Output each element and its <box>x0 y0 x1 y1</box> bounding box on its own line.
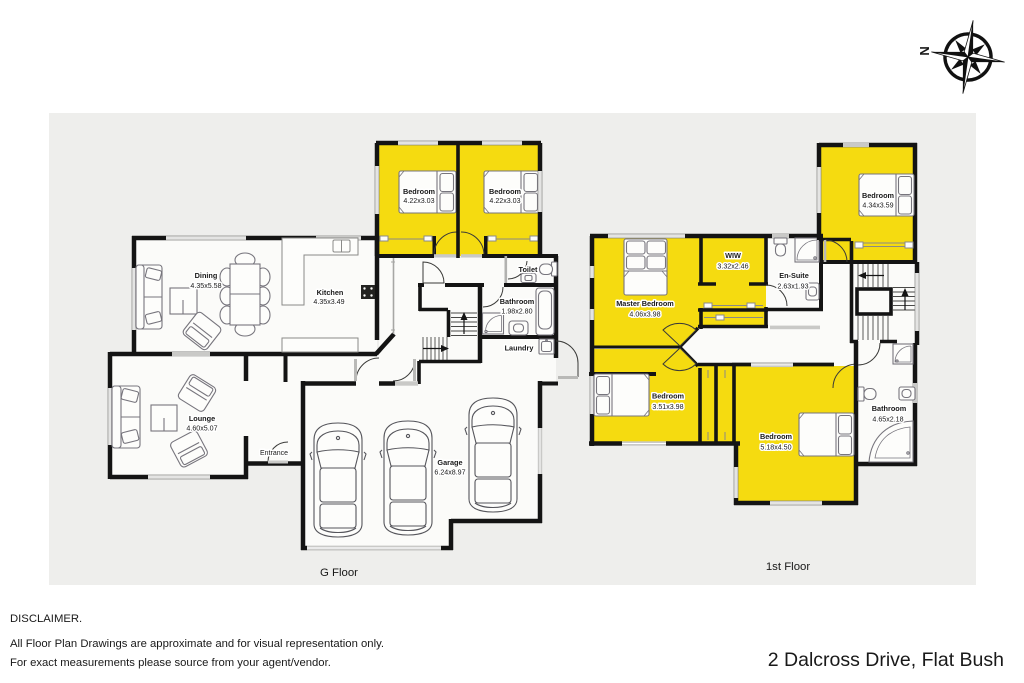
svg-text:Garage: Garage <box>437 458 462 467</box>
svg-text:Bathroom: Bathroom <box>872 404 907 413</box>
svg-text:Lounge: Lounge <box>189 414 215 423</box>
svg-text:Master Bedroom: Master Bedroom <box>616 299 674 308</box>
svg-text:4.60x5.07: 4.60x5.07 <box>186 425 217 433</box>
svg-text:4.35x3.49: 4.35x3.49 <box>313 298 344 306</box>
svg-text:Bedroom: Bedroom <box>403 187 436 196</box>
svg-text:1.98x2.80: 1.98x2.80 <box>501 308 532 316</box>
svg-text:4.22x3.03: 4.22x3.03 <box>403 197 434 205</box>
svg-text:Bedroom: Bedroom <box>862 191 895 200</box>
svg-text:Bedroom: Bedroom <box>760 432 793 441</box>
svg-text:Bedroom: Bedroom <box>489 187 522 196</box>
svg-text:Laundry: Laundry <box>505 344 535 353</box>
svg-text:1st Floor: 1st Floor <box>766 561 811 573</box>
svg-text:4.34x3.59: 4.34x3.59 <box>862 202 893 210</box>
svg-text:3.32x2.46: 3.32x2.46 <box>717 263 748 271</box>
svg-text:DISCLAIMER.: DISCLAIMER. <box>10 613 82 625</box>
svg-text:Toilet: Toilet <box>519 265 538 274</box>
svg-text:Dining: Dining <box>195 271 218 280</box>
svg-text:5.18x4.50: 5.18x4.50 <box>760 444 791 452</box>
svg-text:G Floor: G Floor <box>320 567 358 579</box>
svg-text:4.06x3.98: 4.06x3.98 <box>629 311 660 319</box>
svg-text:For exact measurements please: For exact measurements please source fro… <box>10 657 331 669</box>
svg-text:2 Dalcross Drive, Flat Bush: 2 Dalcross Drive, Flat Bush <box>768 649 1004 671</box>
svg-text:All Floor Plan Drawings are ap: All Floor Plan Drawings are approximate … <box>10 638 384 650</box>
svg-text:WIW: WIW <box>725 251 741 260</box>
svg-text:4.35x5.58: 4.35x5.58 <box>190 282 221 290</box>
svg-text:Entrance: Entrance <box>260 450 288 457</box>
svg-text:4.65x2.18: 4.65x2.18 <box>872 416 903 424</box>
svg-text:2.63x1.93: 2.63x1.93 <box>777 283 808 291</box>
svg-text:Bathroom: Bathroom <box>500 297 535 306</box>
svg-text:6.24x8.97: 6.24x8.97 <box>434 469 465 477</box>
svg-text:En-Suite: En-Suite <box>779 271 809 280</box>
svg-text:3.51x3.98: 3.51x3.98 <box>652 403 683 411</box>
svg-text:4.22x3.03: 4.22x3.03 <box>489 197 520 205</box>
svg-text:Kitchen: Kitchen <box>317 288 344 297</box>
svg-text:Bedroom: Bedroom <box>652 392 685 401</box>
svg-text:N: N <box>917 46 932 55</box>
